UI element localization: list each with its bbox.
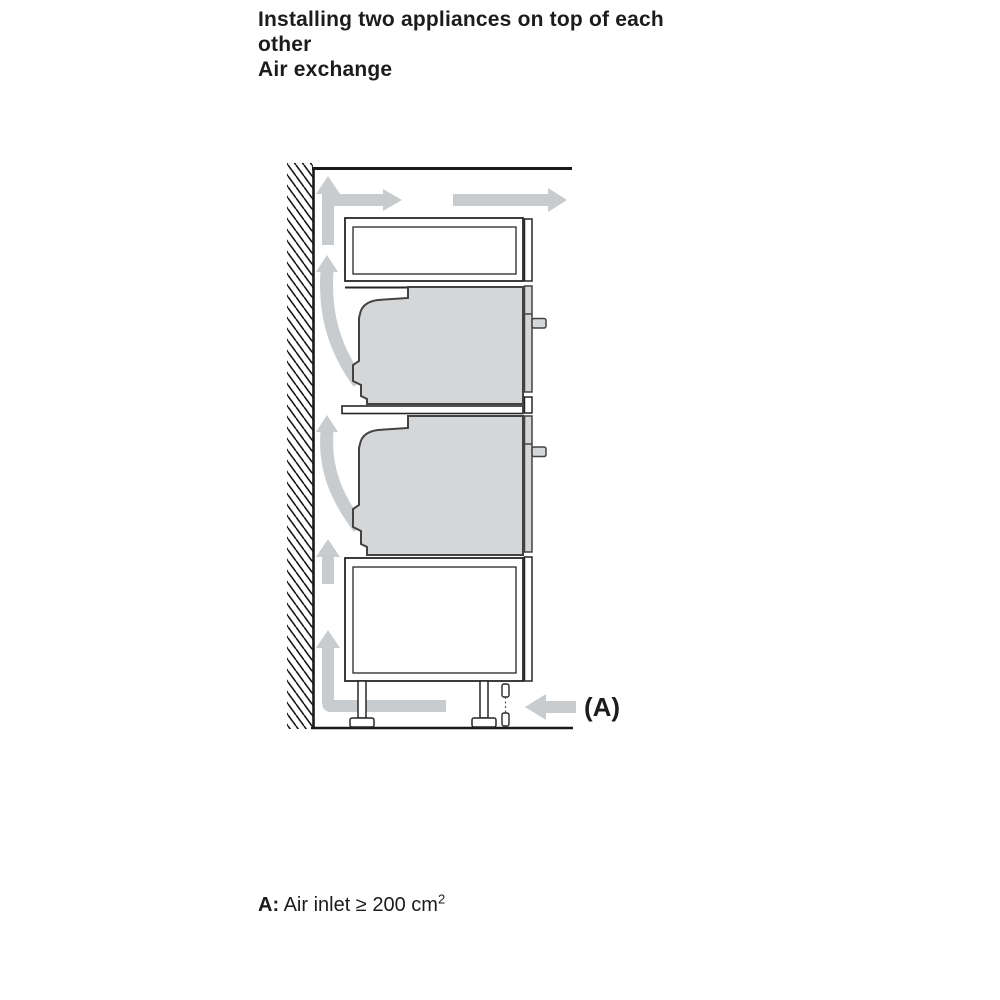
middle-shelf-panel — [342, 406, 523, 414]
airflow-up-arrow-top — [316, 176, 340, 245]
upper-oven-body — [353, 287, 523, 404]
upper-oven — [353, 286, 546, 404]
plinth-adjuster — [502, 684, 509, 726]
lower-oven-door — [525, 416, 533, 552]
right-foot-leg — [480, 681, 488, 718]
caption-air-inlet: A: Air inlet ≥ 200 cm2 — [258, 893, 445, 917]
caption-key: A: — [258, 894, 279, 916]
top-compartment-fascia — [525, 219, 533, 281]
airflow-up-arrow-middle — [316, 539, 340, 584]
caption-superscript: 2 — [438, 891, 445, 906]
upper-oven-door — [525, 286, 533, 392]
top-compartment-inner — [353, 227, 516, 274]
airflow-right-arrow-short — [331, 189, 402, 211]
wall-hatch — [287, 163, 313, 729]
plinth-adjuster-bottom — [502, 713, 509, 726]
lower-oven-body — [353, 416, 523, 555]
air-inlet-arrow — [525, 694, 576, 720]
airflow-right-arrow-long — [453, 188, 567, 212]
base-cabinet-fascia — [525, 557, 533, 681]
wall — [287, 163, 314, 729]
caption-text: Air inlet ≥ 200 cm — [279, 894, 438, 916]
manual-page: Installing two appliances on top of each… — [0, 0, 1000, 1000]
lower-oven — [353, 416, 546, 555]
upper-oven-handle — [532, 319, 546, 329]
left-foot-leg — [358, 681, 366, 718]
installation-diagram: (A) — [0, 0, 1000, 1000]
left-foot-base — [350, 718, 374, 727]
air-inlet-label: (A) — [584, 692, 620, 722]
middle-shelf-fascia — [525, 397, 533, 413]
plinth-adjuster-top — [502, 684, 509, 697]
right-foot-base — [472, 718, 496, 727]
base-cabinet — [345, 557, 532, 681]
lower-oven-handle — [532, 447, 546, 457]
top-compartment — [345, 218, 532, 288]
base-cabinet-inner — [353, 567, 516, 673]
